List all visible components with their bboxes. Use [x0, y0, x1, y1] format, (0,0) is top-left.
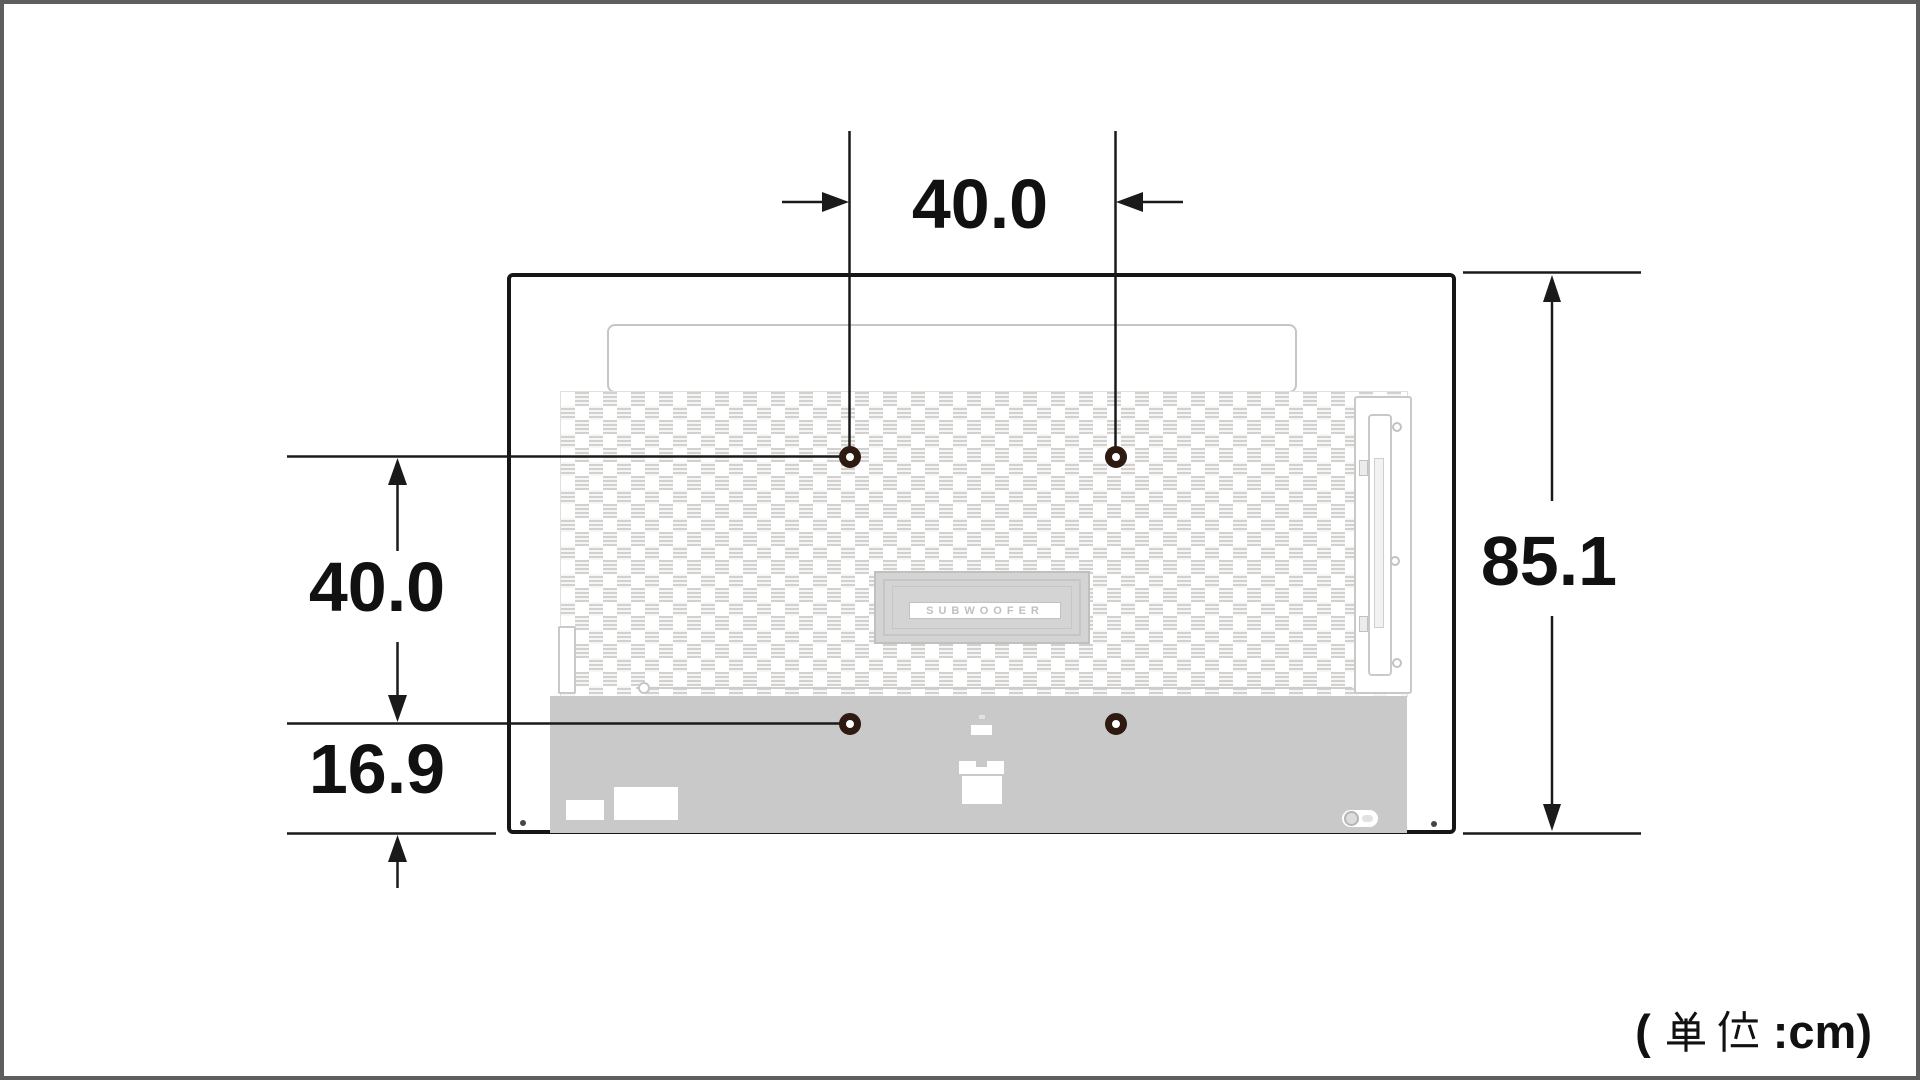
unit-note: ( 単位 :cm): [1635, 1004, 1872, 1058]
vesa-hole-bottom-right: [1105, 713, 1127, 735]
arrowhead-left-icon: [1116, 192, 1143, 212]
unit-note-cm-text: :cm): [1773, 1004, 1872, 1059]
dim-label-mount-width: 40.0: [912, 169, 1048, 239]
unit-note-open-paren: (: [1635, 1004, 1651, 1059]
vesa-hole-bottom-left: [839, 713, 861, 735]
dim-label-panel-height: 85.1: [1481, 526, 1617, 596]
diagram-canvas: SUBWOOFER: [0, 0, 1920, 1080]
vesa-hole-top-left: [839, 446, 861, 468]
arrowhead-up-icon: [1543, 275, 1561, 302]
arrowhead-down-icon: [388, 695, 407, 722]
arrowhead-down-icon: [1543, 804, 1561, 831]
vesa-hole-top-right: [1105, 446, 1127, 468]
arrowhead-up-icon: [388, 458, 407, 485]
kanji-i-icon: [1714, 1009, 1758, 1053]
dim-label-mount-height: 40.0: [309, 552, 445, 622]
arrowhead-right-icon: [822, 192, 849, 212]
arrowhead-up-icon: [388, 835, 407, 862]
kanji-tan-icon: [1664, 1009, 1708, 1053]
dim-label-bottom-offset: 16.9: [309, 734, 445, 804]
